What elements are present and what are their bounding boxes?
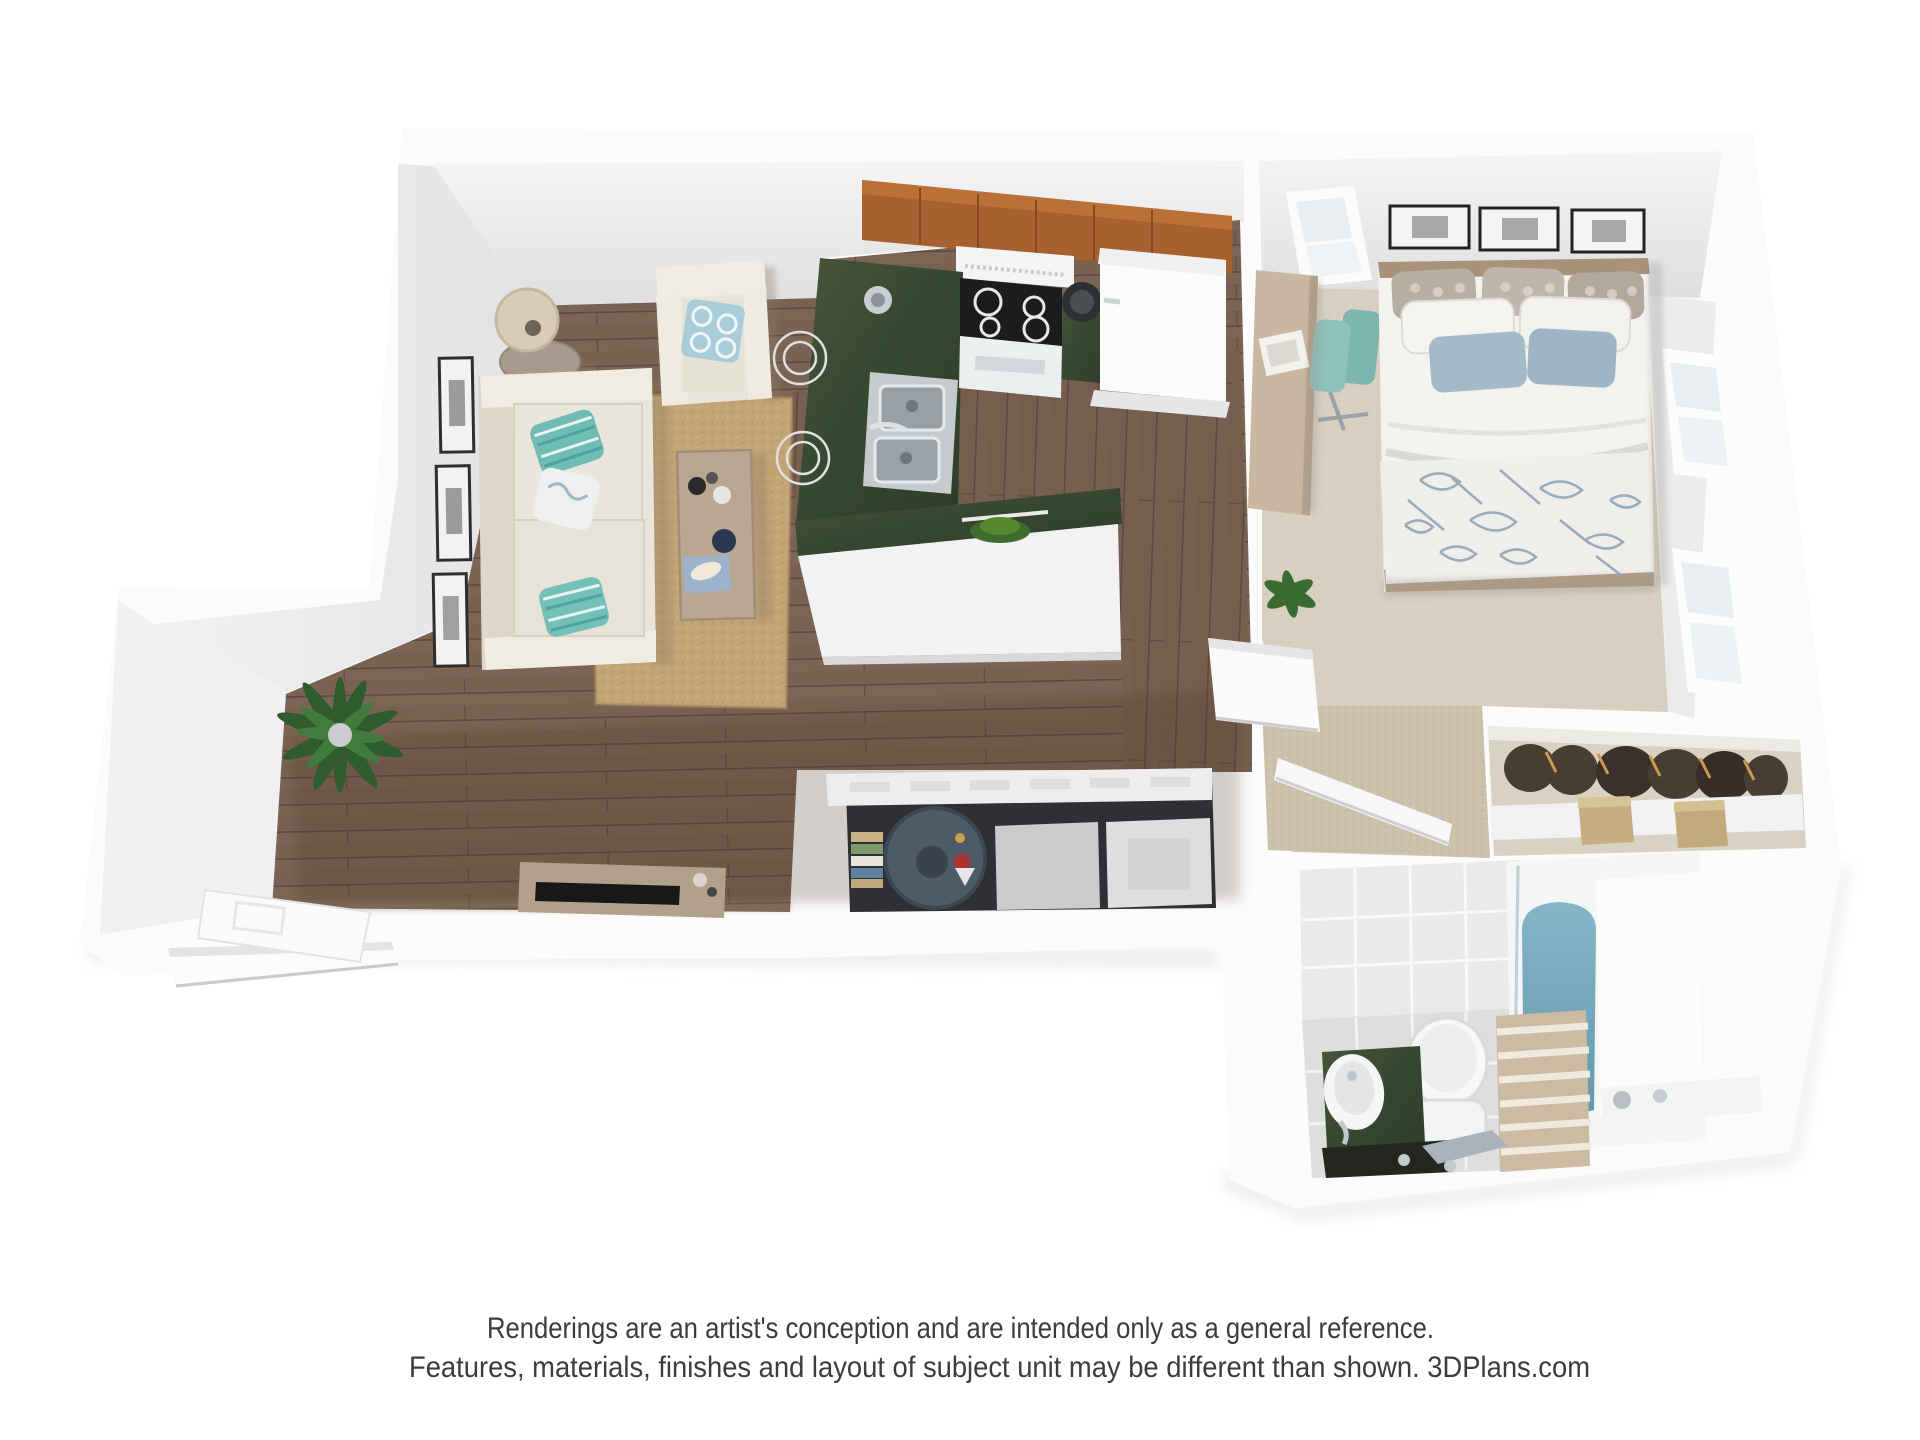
svg-text:Renderings are an artist's con: Renderings are an artist's conception an…	[487, 1312, 1434, 1345]
svg-text:Features, materials, finishes: Features, materials, finishes and layout…	[409, 1351, 1590, 1384]
